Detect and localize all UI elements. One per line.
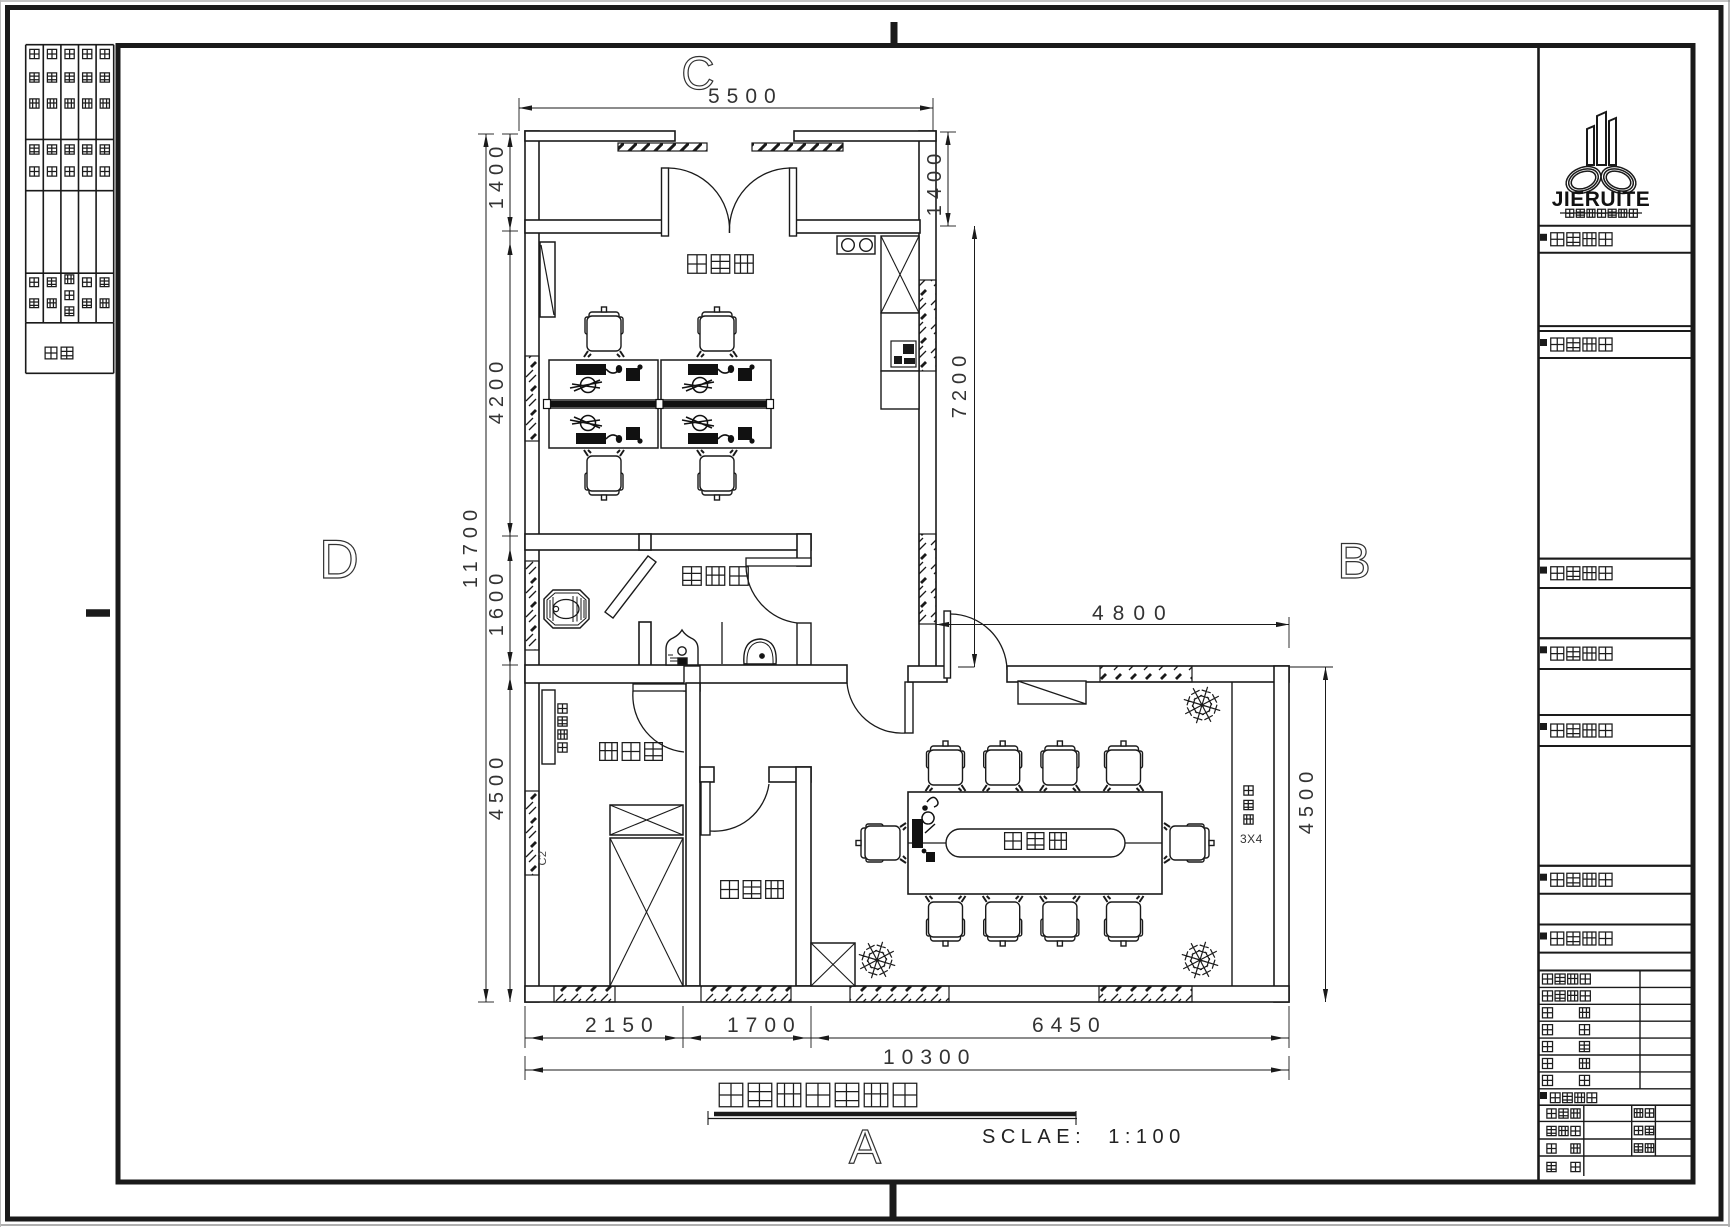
svg-text:JIERUITE: JIERUITE	[1552, 188, 1651, 211]
svg-text:4200: 4200	[486, 356, 508, 425]
svg-text:6450: 6450	[1032, 1014, 1107, 1037]
svg-text:B: B	[1337, 533, 1370, 589]
svg-text:1700: 1700	[727, 1014, 802, 1037]
svg-text:11700: 11700	[460, 504, 482, 588]
svg-text:4500: 4500	[486, 752, 508, 821]
svg-text:2150: 2150	[585, 1014, 660, 1037]
svg-text:1400: 1400	[924, 148, 946, 217]
svg-text:C2: C2	[537, 850, 549, 865]
svg-text:D: D	[319, 528, 359, 590]
svg-text:7200: 7200	[949, 350, 971, 419]
svg-text:10300: 10300	[883, 1046, 976, 1069]
svg-text:4500: 4500	[1296, 766, 1318, 835]
svg-text:5500: 5500	[708, 85, 783, 108]
svg-text:3X4: 3X4	[1240, 832, 1263, 846]
svg-text:SCLAE: 1:100: SCLAE: 1:100	[982, 1126, 1186, 1148]
svg-text:4800: 4800	[1092, 602, 1175, 625]
svg-text:A: A	[849, 1121, 881, 1174]
svg-text:1600: 1600	[486, 568, 508, 637]
svg-text:1400: 1400	[486, 141, 508, 210]
